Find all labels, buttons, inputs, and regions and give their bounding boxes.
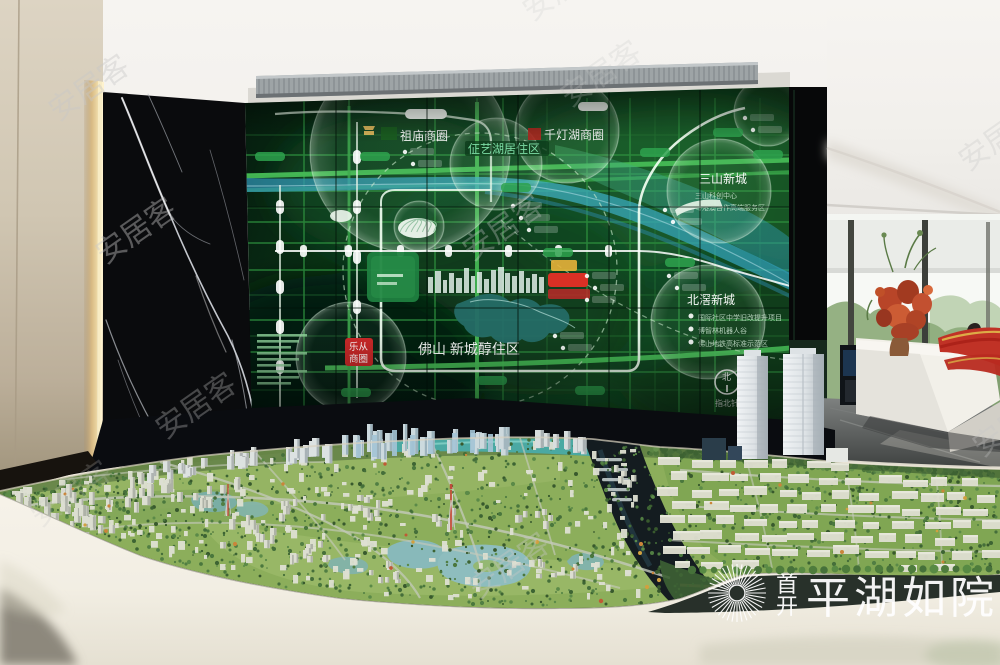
svg-text:平湖如院: 平湖如院 — [806, 574, 998, 623]
svg-text:开: 开 — [776, 594, 798, 619]
